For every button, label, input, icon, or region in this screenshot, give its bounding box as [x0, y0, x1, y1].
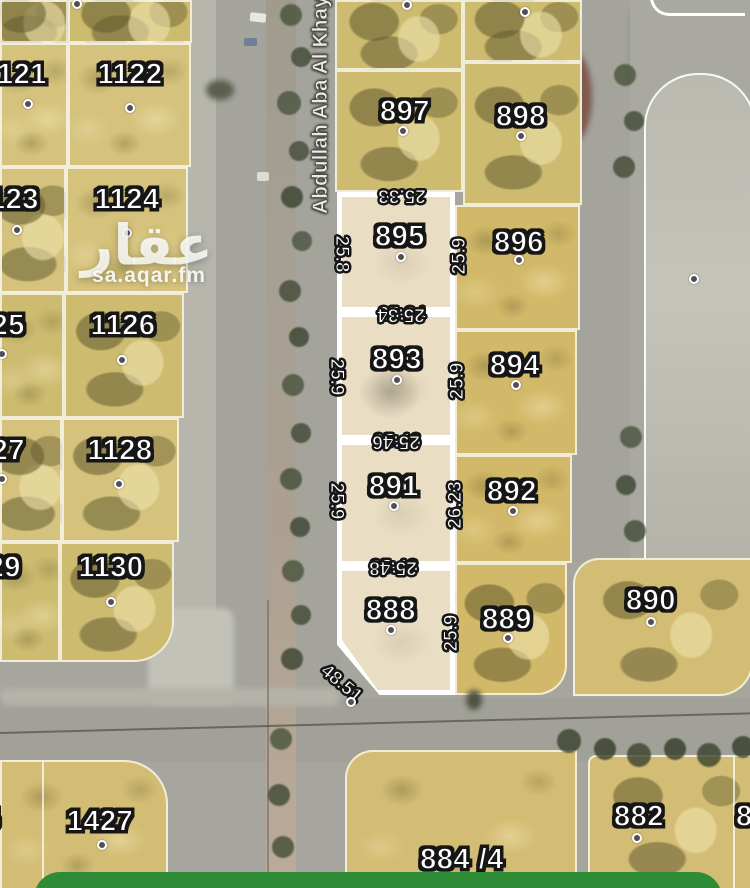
map-canvas[interactable]: Abdullah Aba Al Khay 1121 1122 1123 1124…	[0, 0, 750, 888]
parcel-label-890: 890	[626, 585, 676, 618]
parcel-marker-dot	[106, 597, 116, 607]
parcel-marker-dot	[12, 225, 22, 235]
parcel-marker-dot	[516, 131, 526, 141]
parcel-label-893: 893	[372, 344, 422, 377]
dimension-label: 25.9	[449, 238, 471, 275]
parcel-label-1121: 1121	[0, 59, 47, 92]
dimension-label: 26.23	[445, 481, 467, 529]
parcel-label-1127: 1127	[0, 435, 25, 468]
parcel-label-1130: 1130	[79, 552, 144, 585]
parcel-marker-dot	[392, 375, 402, 385]
parcel-marker-dot	[508, 506, 518, 516]
dimension-label: 25.33	[378, 184, 426, 206]
parcel-marker-dot	[632, 833, 642, 843]
parcel-marker-dot	[125, 103, 135, 113]
dimension-label: 25.8	[330, 236, 352, 273]
bottom-action-bar[interactable]	[34, 872, 722, 888]
corner-arc	[650, 0, 745, 16]
car-blue	[244, 38, 257, 46]
dimension-label: 25.9	[325, 359, 347, 396]
parcel-label-1129: 1129	[0, 552, 21, 585]
parcel-label-1125: 1125	[0, 310, 25, 343]
parcel-label-891: 891	[369, 471, 419, 504]
parcel-label-1427: 1427	[67, 806, 134, 839]
parcel-label-895: 895	[375, 221, 425, 254]
parcel-marker-dot	[646, 617, 656, 627]
median-edge-line	[267, 600, 269, 888]
parcel-label-889: 889	[482, 604, 532, 637]
parcel-marker-dot	[402, 0, 412, 10]
parcel-marker-dot	[389, 501, 399, 511]
parcel-marker-dot	[346, 697, 356, 707]
parcel-marker-dot	[514, 255, 524, 265]
dimension-label: 25.9	[441, 615, 463, 652]
block-divider	[42, 762, 44, 888]
parcel-marker-dot	[386, 625, 396, 635]
street-name-label: Abdullah Aba Al Khay	[309, 0, 333, 214]
parcel-label-882: 882	[614, 801, 664, 834]
road-light-band	[0, 688, 340, 706]
parcel-888-fill	[342, 571, 450, 690]
block-divider	[733, 757, 735, 888]
dimension-label: 25.9	[325, 483, 347, 520]
parcel-marker-dot	[396, 252, 406, 262]
parcel-marker-dot	[114, 479, 124, 489]
parcel-label-1425: 1425	[0, 804, 1, 837]
car-white	[250, 12, 267, 23]
parcel-marker-dot	[23, 99, 33, 109]
parcel-strip-top897[interactable]	[335, 0, 463, 70]
parcel-888-highlighted[interactable]	[337, 566, 455, 695]
parcel-label-fragment-8: 8	[736, 801, 750, 834]
parcel-label-1128: 1128	[88, 435, 153, 468]
parcel-label-894: 894	[490, 350, 540, 383]
dimension-label: 25.9	[447, 363, 469, 400]
parcel-882-block[interactable]	[588, 755, 750, 888]
street-median	[266, 0, 296, 888]
parcel-marker-dot	[520, 7, 530, 17]
car-white-2	[257, 172, 269, 181]
parcel-label-1126: 1126	[91, 310, 156, 343]
parcel-label-888: 888	[366, 595, 416, 628]
dimension-label: 25.48	[369, 556, 417, 578]
parcel-strip-topleft2[interactable]	[68, 0, 192, 43]
parcel-label-897: 897	[380, 96, 430, 129]
parcel-890-block[interactable]	[573, 558, 750, 696]
tree-icons	[0, 0, 18, 18]
aqar-site-watermark: sa.aqar.fm	[92, 264, 206, 288]
parcel-marker-dot	[398, 126, 408, 136]
parcel-marker-dot	[117, 355, 127, 365]
parcel-marker-dot	[503, 633, 513, 643]
parcel-label-1122: 1122	[98, 59, 163, 92]
parcel-label-1124: 1124	[95, 184, 160, 217]
parcel-label-1123: 1123	[0, 184, 39, 217]
dimension-label: 25.34	[377, 303, 425, 325]
sidewalk-tree-blob	[206, 80, 234, 100]
parcel-marker-dot	[511, 380, 521, 390]
parcel-896[interactable]	[455, 205, 580, 330]
road-shadow-blob	[466, 690, 482, 710]
arch-parcel[interactable]	[644, 73, 750, 562]
parcel-marker-dot	[97, 840, 107, 850]
parcel-marker-dot	[689, 274, 699, 284]
parcel-label-892: 892	[487, 476, 537, 509]
dimension-label: 25.46	[372, 430, 420, 452]
parcel-label-898: 898	[496, 101, 546, 134]
